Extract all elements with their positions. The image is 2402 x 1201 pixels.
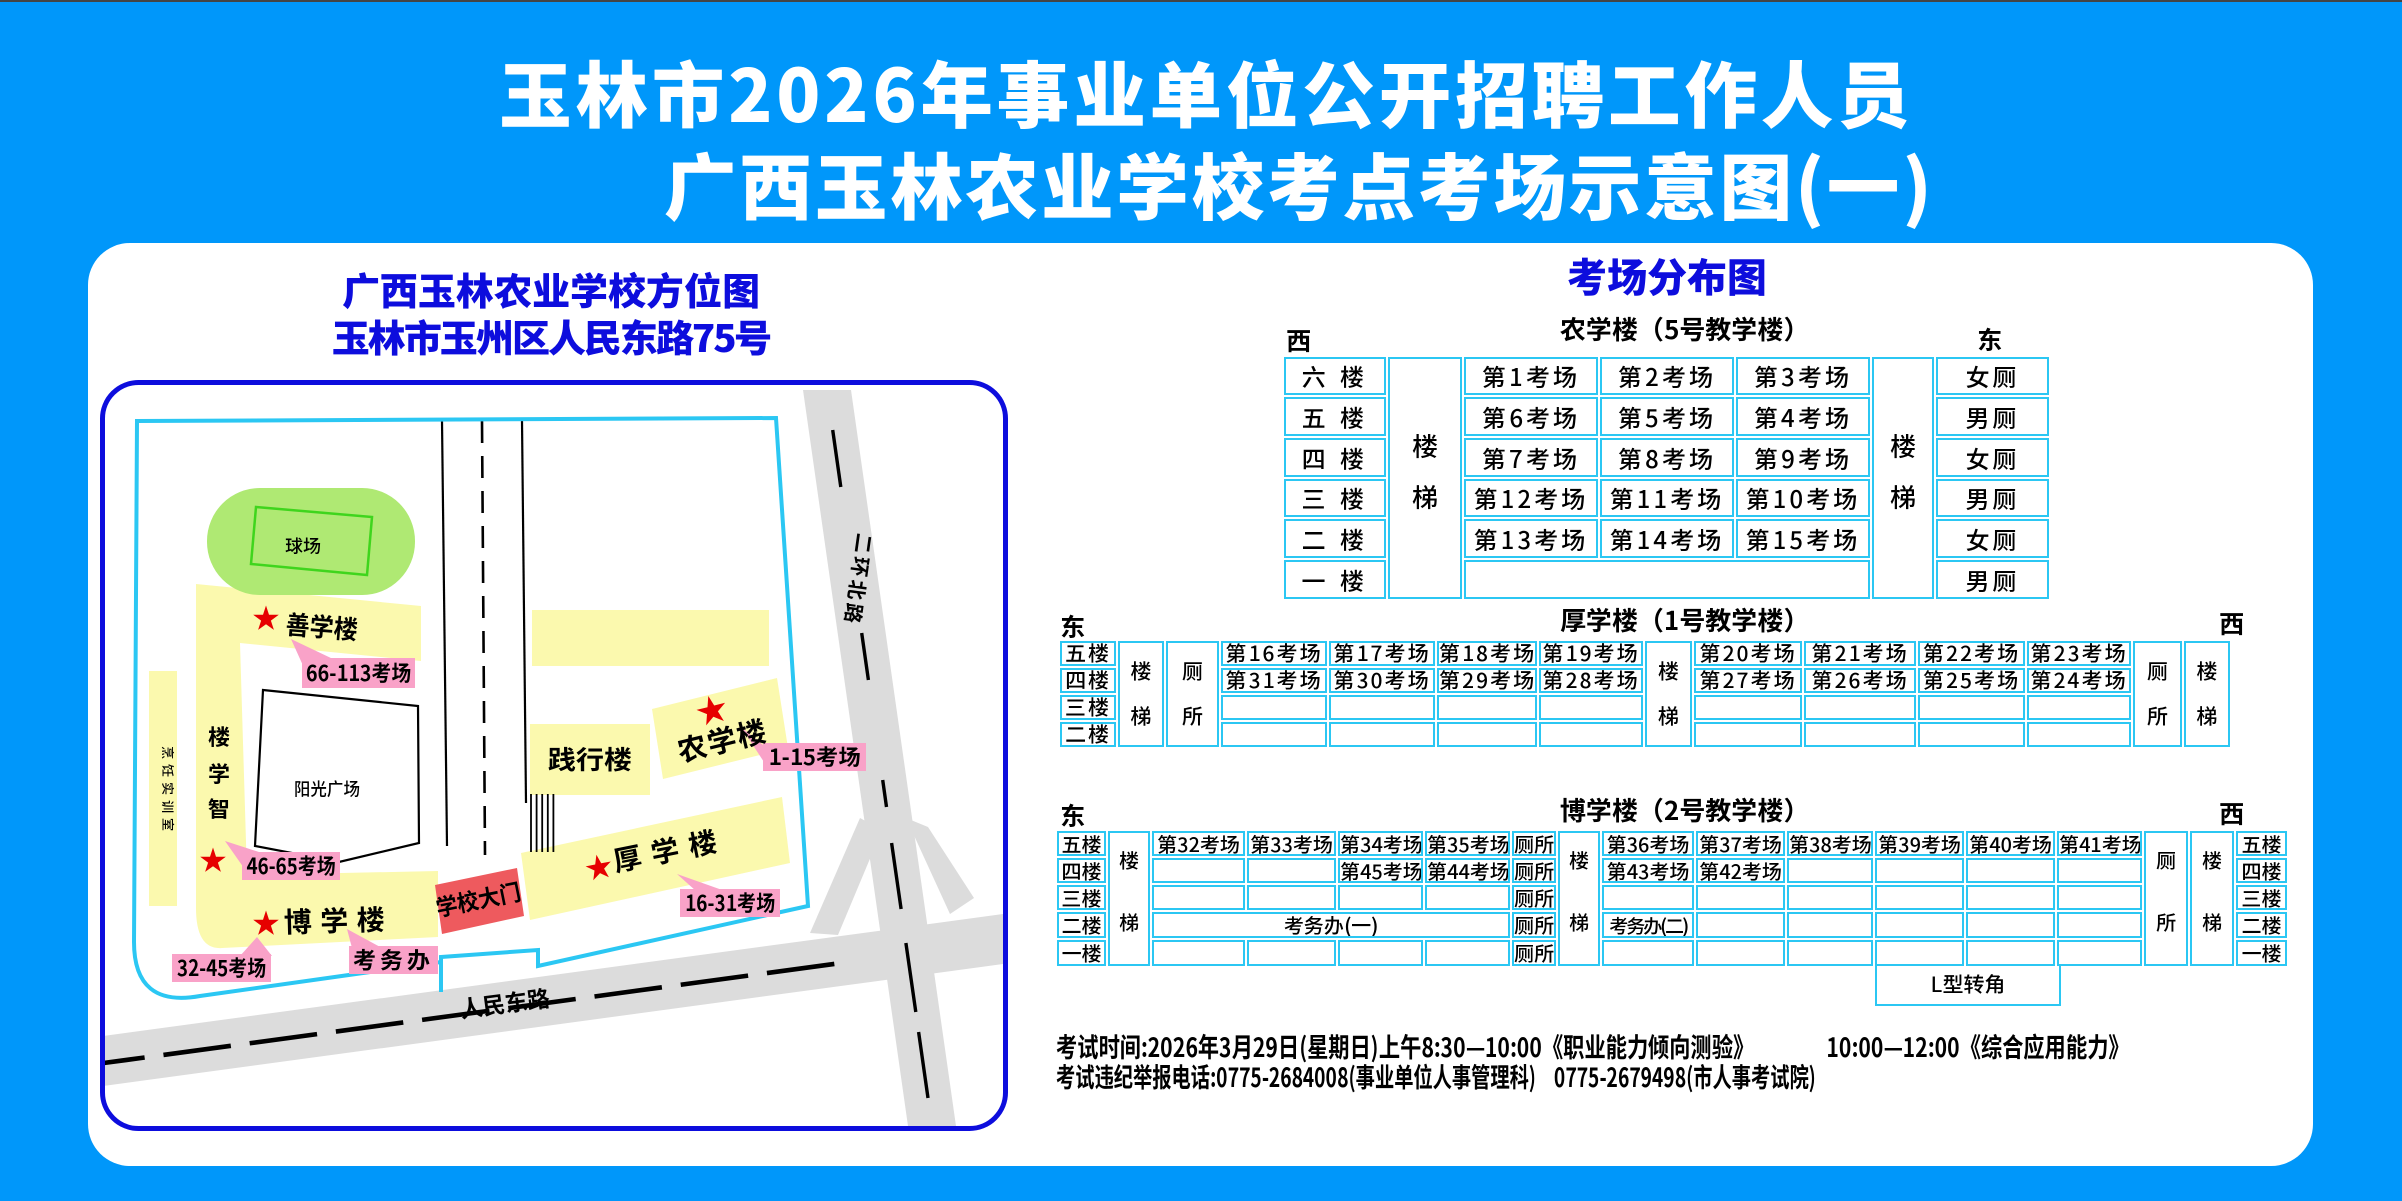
- svg-text:善学楼: 善学楼: [284, 605, 359, 648]
- svg-text:博 学 楼: 博 学 楼: [283, 899, 386, 942]
- svg-text:32-45考场: 32-45考场: [177, 951, 266, 983]
- svg-text:1-15考场: 1-15考场: [769, 740, 861, 772]
- svg-text:16-31考场: 16-31考场: [685, 886, 775, 918]
- svg-text:46-65考场: 46-65考场: [247, 849, 336, 881]
- svg-text:学: 学: [208, 757, 230, 789]
- svg-text:阳光广场: 阳光广场: [294, 776, 360, 802]
- svg-text:球场: 球场: [285, 533, 321, 559]
- svg-text:考务办: 考务办: [353, 941, 434, 975]
- svg-text:楼: 楼: [208, 720, 230, 752]
- svg-text:烹饪实训室: 烹饪实训室: [159, 746, 178, 836]
- svg-text:66-113考场: 66-113考场: [306, 656, 411, 688]
- svg-text:践行楼: 践行楼: [548, 740, 632, 777]
- svg-text:智: 智: [208, 792, 230, 824]
